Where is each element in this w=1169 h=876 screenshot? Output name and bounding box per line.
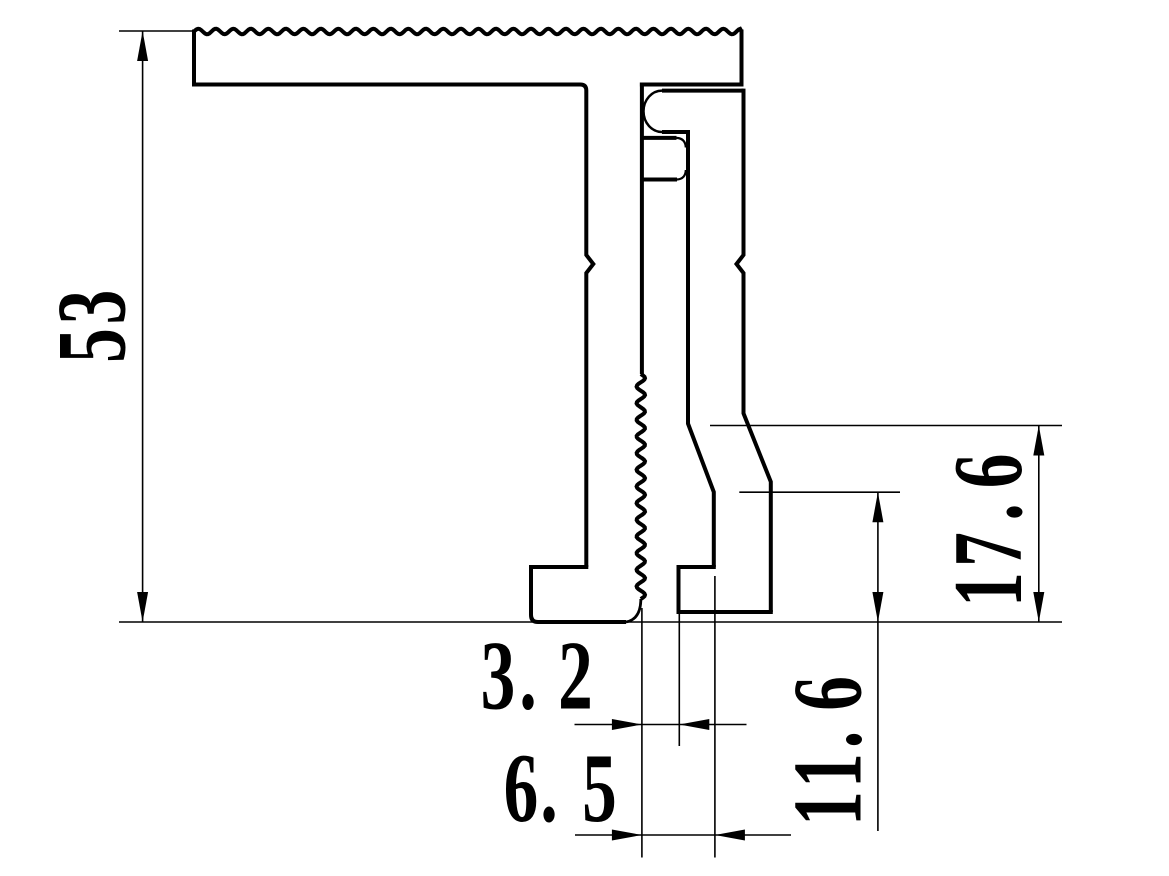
svg-text:5: 5: [38, 328, 147, 363]
svg-text:.: .: [519, 622, 536, 731]
svg-text:3: 3: [38, 290, 147, 325]
svg-text:6: 6: [504, 734, 539, 843]
svg-text:3: 3: [481, 622, 516, 731]
svg-text:5: 5: [582, 734, 617, 843]
svg-text:.: .: [540, 734, 557, 843]
svg-text:1: 1: [774, 753, 883, 788]
svg-text:.: .: [774, 731, 883, 748]
svg-text:2: 2: [558, 622, 593, 731]
svg-text:6: 6: [774, 676, 883, 711]
svg-text:7: 7: [934, 532, 1043, 567]
svg-text:.: .: [934, 503, 1043, 520]
svg-text:1: 1: [934, 572, 1043, 607]
svg-text:1: 1: [774, 791, 883, 826]
svg-text:6: 6: [934, 454, 1043, 489]
